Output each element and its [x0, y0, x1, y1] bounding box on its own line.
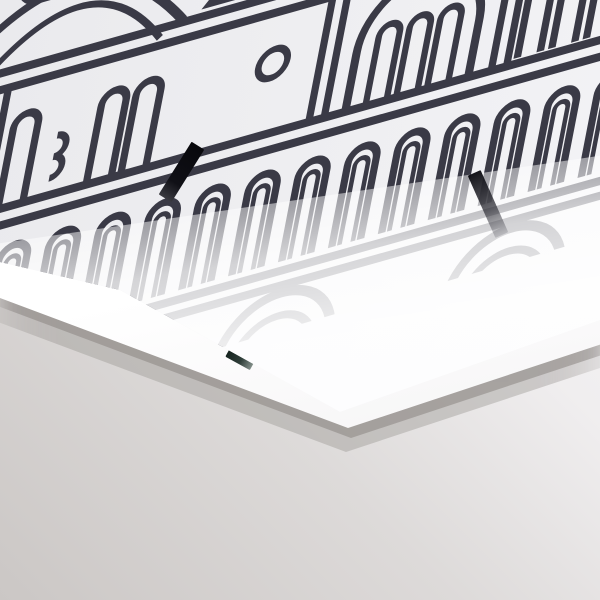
dome-arcs — [0, 0, 197, 104]
glass-print-mockup-scene — [0, 0, 600, 600]
rose-oculus — [256, 45, 291, 83]
